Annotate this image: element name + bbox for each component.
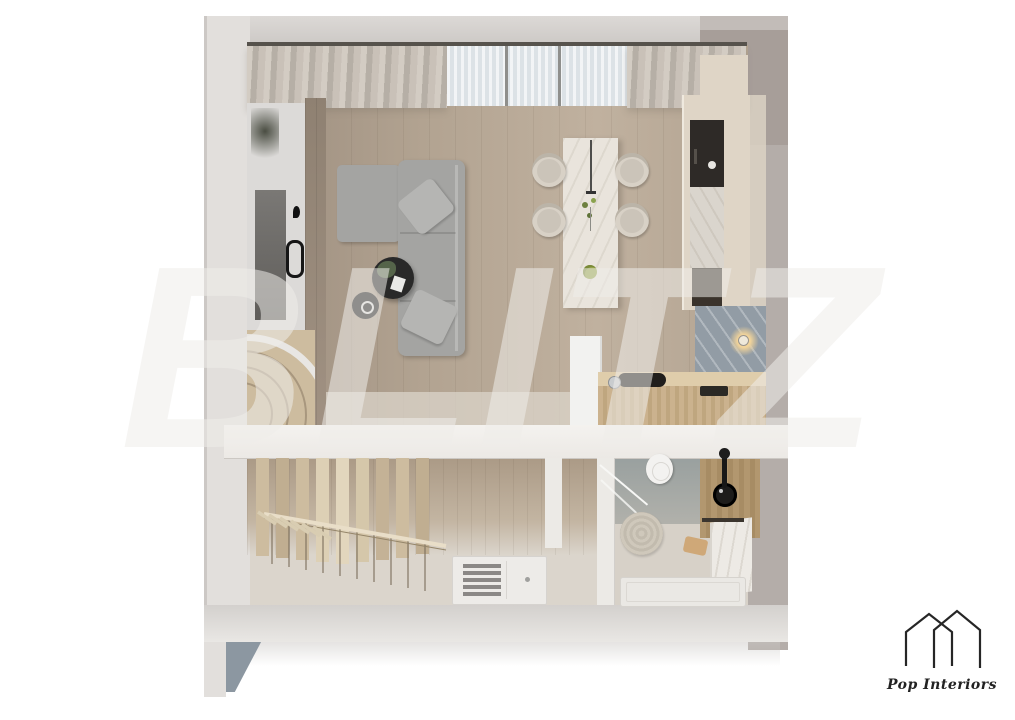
brand-logo: Pop Interiors — [872, 608, 1012, 694]
dining-chair — [532, 153, 566, 187]
page-background: BLITZ Pop Interiors — [0, 0, 1015, 720]
toilet-seat — [652, 462, 670, 481]
bottom-wall — [204, 605, 788, 642]
chair-seat — [537, 209, 561, 233]
oven-handle — [694, 149, 697, 164]
left-wall — [204, 16, 250, 627]
door-louver — [463, 585, 501, 589]
fruit-bowl — [583, 265, 597, 279]
door-knob — [525, 577, 530, 582]
counter-tray — [700, 386, 728, 396]
door-panel-line — [506, 561, 507, 599]
ground-shadow — [224, 642, 780, 666]
faucet-head — [719, 448, 730, 459]
window-mullion — [505, 46, 508, 106]
chair-seat — [620, 159, 644, 183]
dining-chair — [615, 153, 649, 187]
sofa-back-edge — [455, 165, 458, 351]
staircase — [250, 458, 455, 603]
chair-seat — [537, 159, 561, 183]
brand-name: Pop Interiors — [872, 677, 1012, 694]
dining-chair — [532, 203, 566, 237]
door-louver — [463, 592, 501, 596]
marble-niche — [690, 187, 724, 268]
stair-slats — [256, 458, 429, 564]
door-jamb-wall — [545, 458, 562, 548]
sofa-chaise — [337, 165, 400, 242]
cup — [708, 161, 716, 169]
chair-seat — [620, 209, 644, 233]
wall-lamp — [738, 335, 749, 346]
door-louver — [463, 564, 501, 568]
curtain-left — [247, 46, 447, 108]
stair-rail-curve — [247, 334, 315, 430]
round-rug — [620, 512, 663, 555]
double-house-outline-icon — [894, 608, 990, 670]
sink-glint — [719, 489, 723, 493]
kitchen-wall-top — [700, 55, 748, 100]
shower-tray-inset — [626, 582, 740, 602]
side-table-dish — [361, 301, 374, 314]
staircase-top — [247, 330, 315, 430]
pendant-light — [586, 191, 596, 194]
shower-tray — [620, 577, 746, 607]
house-right-outline — [934, 611, 980, 668]
kitchen-side-face — [748, 95, 766, 310]
cooktop — [618, 373, 666, 387]
appliance-niche — [692, 268, 722, 306]
floor-slab — [224, 425, 788, 459]
door-louver — [463, 578, 501, 582]
sheer-window — [447, 46, 627, 106]
dining-chair — [615, 203, 649, 237]
pendant-light-cord — [590, 140, 592, 192]
island-plant — [582, 202, 588, 208]
entrance-door — [452, 556, 547, 605]
coat-hook — [293, 206, 300, 218]
island-plant — [591, 198, 596, 203]
entry-plant — [251, 108, 279, 166]
sofa-seam — [400, 232, 456, 234]
pot — [608, 376, 621, 389]
entry-door-mirror — [255, 190, 286, 320]
door-louver — [463, 571, 501, 575]
plant-stem — [590, 207, 591, 231]
door-handle — [286, 240, 304, 278]
kitchen-counter — [598, 386, 766, 430]
towel-bar — [702, 518, 744, 522]
window-mullion — [558, 46, 561, 106]
